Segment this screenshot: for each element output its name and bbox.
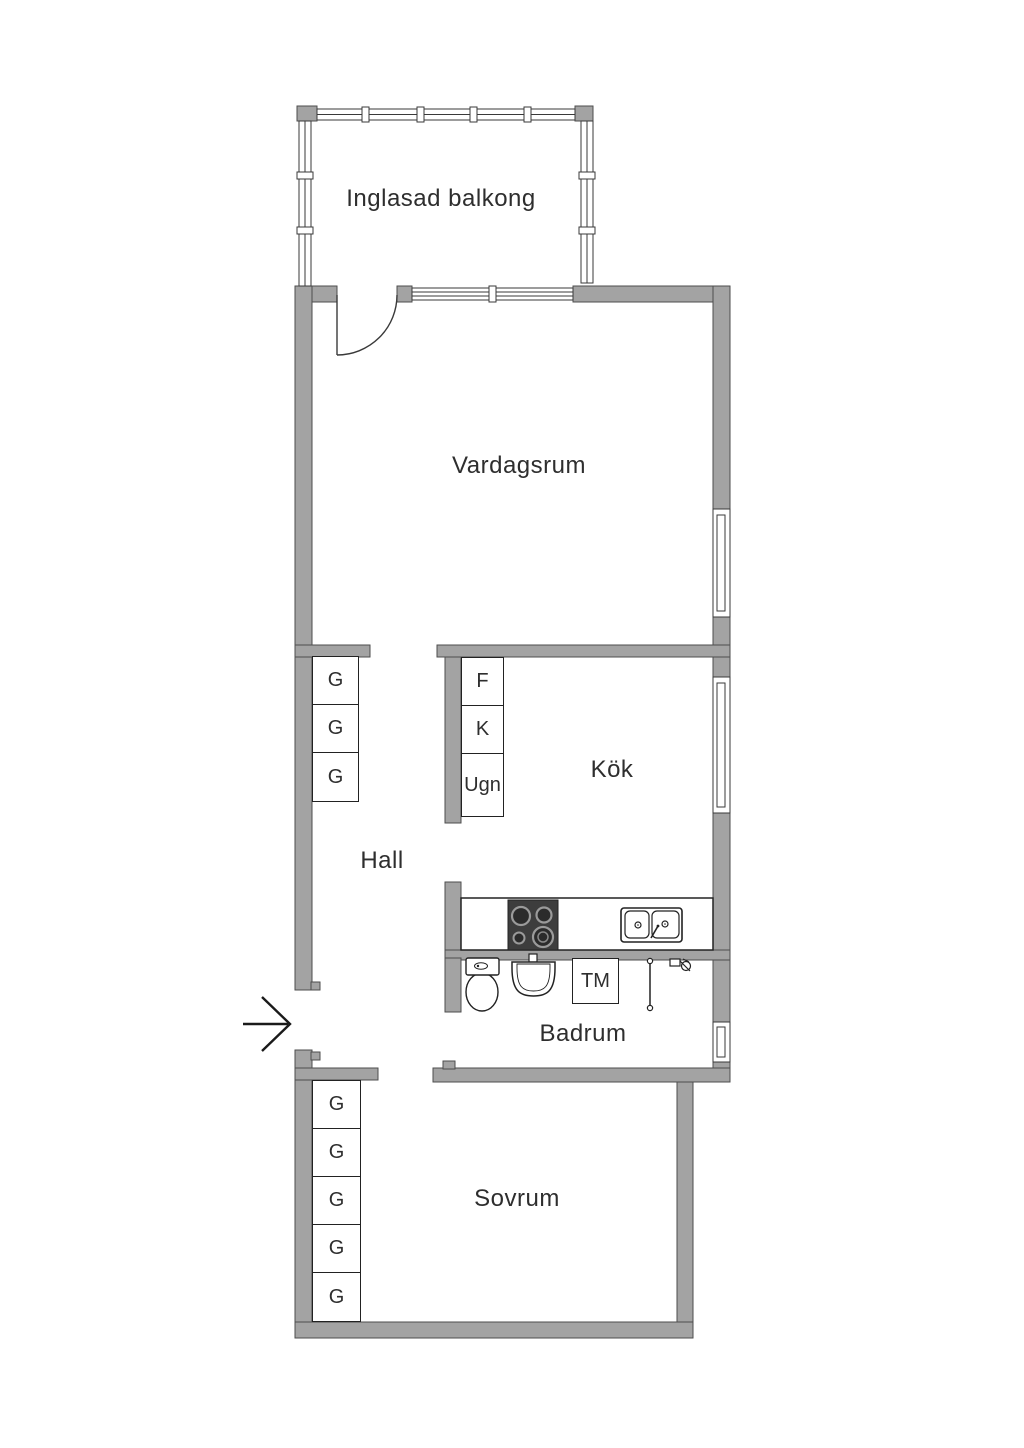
hall-closet: G [312, 656, 359, 705]
shower-rail-icon [647, 958, 652, 1010]
window-icon [713, 509, 730, 617]
wall [397, 286, 412, 302]
wall [445, 882, 461, 958]
stove-icon [508, 900, 558, 950]
room-label-hall: Hall [360, 847, 403, 875]
wall [445, 657, 461, 823]
washing-machine-unit: TM [572, 958, 619, 1004]
wall [295, 286, 312, 990]
wall [573, 286, 730, 302]
wall [295, 1068, 378, 1080]
bedroom-closet: G [312, 1080, 361, 1129]
bedroom-closet: G [312, 1128, 361, 1177]
wall [295, 1050, 312, 1338]
wall [297, 106, 317, 121]
toilet-icon [466, 958, 499, 1011]
wall [311, 1052, 320, 1060]
freezer-unit: K [461, 705, 504, 754]
floor-plan: Inglasad balkong Vardagsrum Kök Hall Bad… [0, 0, 1024, 1448]
wall [443, 1061, 455, 1069]
oven-unit: Ugn [461, 753, 504, 817]
bedroom-closet: G [312, 1224, 361, 1273]
bedroom-closet: G [312, 1176, 361, 1225]
door-swing-icon [337, 295, 397, 355]
wall [575, 106, 593, 121]
bedroom-closet: G [312, 1272, 361, 1322]
wall [295, 1322, 693, 1338]
window-icon [713, 677, 730, 813]
room-label-badrum: Badrum [539, 1020, 626, 1048]
wall [445, 958, 461, 1012]
floor-plan-drawing [0, 0, 1024, 1448]
wall [311, 982, 320, 990]
hall-closet: G [312, 752, 359, 802]
wall [677, 1082, 693, 1338]
room-label-inglasad-balkong: Inglasad balkong [346, 185, 535, 213]
room-label-kok: Kök [591, 756, 634, 784]
shower-mixer-icon [670, 959, 691, 971]
window-icon [412, 286, 573, 302]
fridge-unit: F [461, 657, 504, 706]
window-icon [297, 121, 313, 286]
window-icon [579, 121, 595, 283]
wall [437, 645, 730, 657]
entrance-arrow-icon [243, 997, 290, 1051]
wall [433, 1068, 730, 1082]
sink-icon [621, 908, 682, 942]
window-icon [713, 1022, 730, 1062]
room-label-sovrum: Sovrum [474, 1185, 560, 1213]
wall [713, 286, 730, 509]
kitchen-counter [461, 898, 713, 950]
window-icon [317, 107, 575, 122]
room-label-vardagsrum: Vardagsrum [452, 452, 586, 480]
wall [713, 813, 730, 1022]
hall-closet: G [312, 704, 359, 753]
